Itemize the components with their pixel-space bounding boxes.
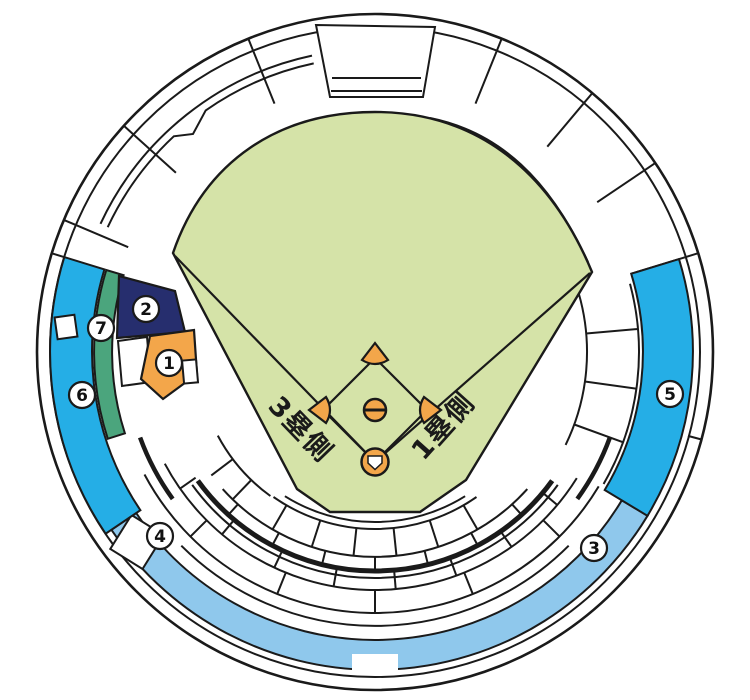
badge-label-3: 3 bbox=[588, 539, 600, 559]
band-gap-bottom bbox=[352, 654, 398, 672]
badge-section-7[interactable]: 7 bbox=[88, 315, 114, 341]
section-6-notch bbox=[55, 315, 78, 340]
badge-section-6[interactable]: 6 bbox=[69, 382, 95, 408]
badge-section-1[interactable]: 1 bbox=[156, 350, 182, 376]
badge-section-5[interactable]: 5 bbox=[657, 381, 683, 407]
badge-section-4[interactable]: 4 bbox=[147, 523, 173, 549]
badge-label-1: 1 bbox=[163, 354, 175, 374]
badge-section-3[interactable]: 3 bbox=[581, 535, 607, 561]
badge-label-2: 2 bbox=[140, 300, 152, 320]
badge-label-6: 6 bbox=[76, 386, 88, 406]
badge-label-5: 5 bbox=[664, 385, 676, 405]
stadium-map-canvas: 3塁側 1塁側 1 2 3 4 5 6 bbox=[0, 0, 750, 700]
stadium-seat-map: 3塁側 1塁側 1 2 3 4 5 6 bbox=[0, 0, 750, 700]
section-1-notch bbox=[182, 359, 198, 383]
badge-label-7: 7 bbox=[95, 319, 107, 339]
badge-section-2[interactable]: 2 bbox=[133, 296, 159, 322]
badge-label-4: 4 bbox=[154, 527, 166, 547]
scoreboard-block bbox=[316, 25, 435, 97]
